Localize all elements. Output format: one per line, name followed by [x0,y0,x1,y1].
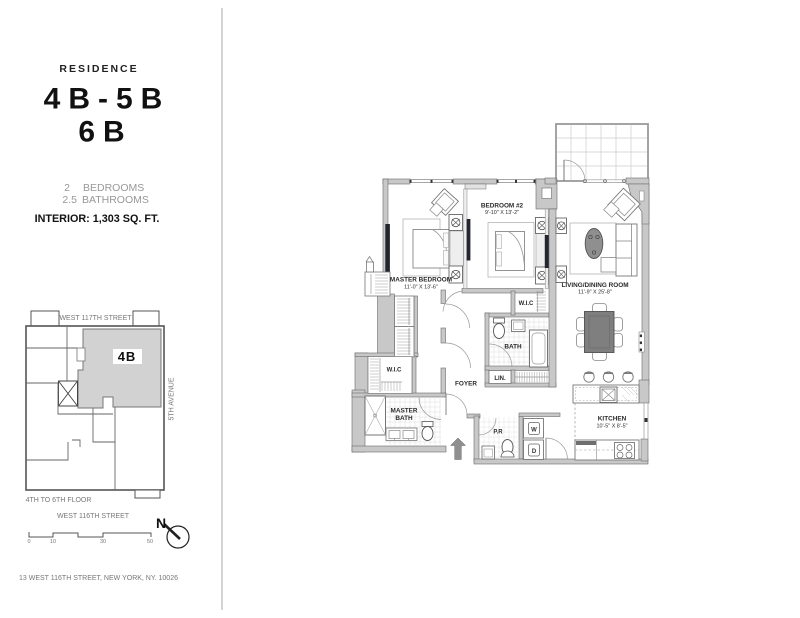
svg-text:6B: 6B [78,116,132,149]
svg-text:BATHROOMS: BATHROOMS [82,194,149,206]
svg-text:10'-5" X 8'-5": 10'-5" X 8'-5" [596,424,627,430]
svg-text:P.R: P.R [493,430,503,436]
svg-text:2.5: 2.5 [62,194,77,206]
svg-text:4B: 4B [118,349,137,364]
svg-text:W.I.C: W.I.C [387,368,402,374]
svg-text:50: 50 [147,539,153,545]
svg-text:2: 2 [64,182,70,194]
svg-text:WEST 117TH STREET: WEST 117TH STREET [59,315,132,322]
svg-text:BEDROOM #2: BEDROOM #2 [481,203,524,210]
svg-text:13 WEST 116TH STREET, NEW YORK: 13 WEST 116TH STREET, NEW YORK, NY. 1002… [19,575,178,582]
svg-text:FOYER: FOYER [455,381,477,388]
svg-text:10: 10 [50,539,56,545]
svg-text:MASTER BEDROOM: MASTER BEDROOM [390,277,452,284]
svg-text:W.I.C: W.I.C [519,301,534,307]
svg-text:MASTER: MASTER [391,408,418,415]
svg-text:W: W [531,428,537,434]
svg-text:LIN.: LIN. [494,376,506,382]
svg-text:30: 30 [100,539,106,545]
svg-text:KITCHEN: KITCHEN [598,416,627,423]
svg-text:4B-5B: 4B-5B [44,83,171,116]
svg-text:BATH: BATH [504,344,522,351]
svg-text:RESIDENCE: RESIDENCE [59,63,138,75]
svg-text:4TH TO 6TH FLOOR: 4TH TO 6TH FLOOR [26,497,92,504]
svg-text:BEDROOMS: BEDROOMS [83,182,144,194]
svg-text:INTERIOR: 1,303 SQ. FT.: INTERIOR: 1,303 SQ. FT. [35,213,160,225]
svg-text:WEST 116TH STREET: WEST 116TH STREET [57,513,130,520]
svg-text:5TH AVENUE: 5TH AVENUE [169,377,176,420]
svg-text:BATH: BATH [395,415,413,422]
svg-text:11'-0" X 13'-6": 11'-0" X 13'-6" [404,285,438,291]
svg-text:11'-9" X 25'-8": 11'-9" X 25'-8" [578,290,612,296]
svg-text:N: N [156,515,166,531]
svg-text:9'-10" X 13'-2": 9'-10" X 13'-2" [485,210,519,216]
svg-text:D: D [532,449,537,455]
svg-text:0: 0 [27,539,30,545]
svg-text:LIVING/DINING ROOM: LIVING/DINING ROOM [561,282,628,289]
